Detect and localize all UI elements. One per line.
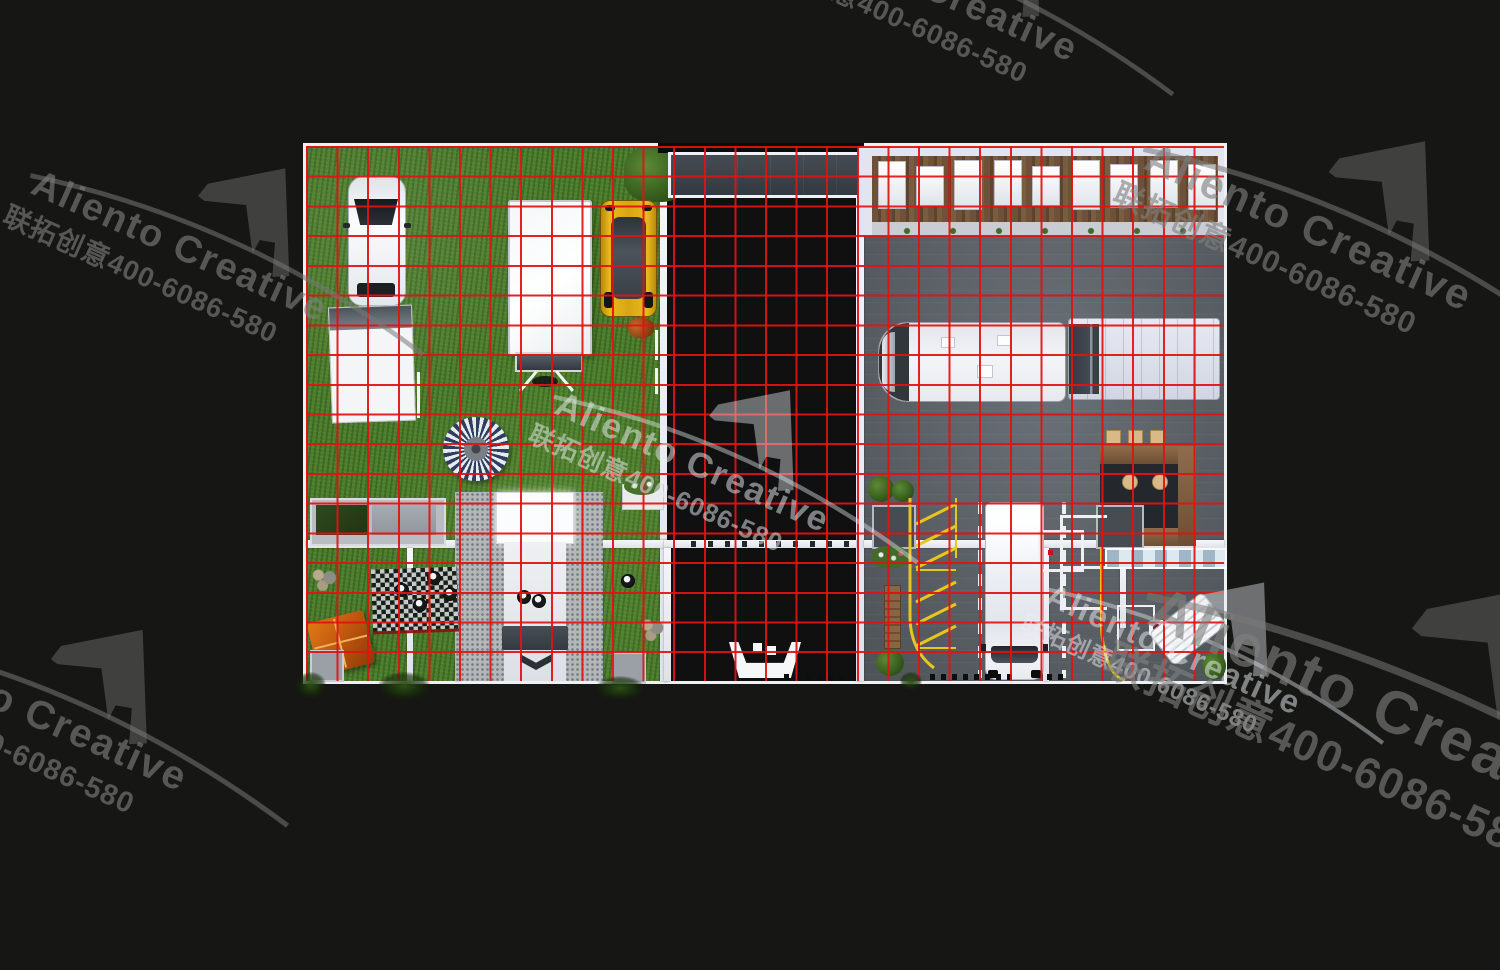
aliento-logo-icon — [767, 0, 1233, 110]
desk-stool — [753, 643, 762, 652]
skylight-window — [1110, 164, 1138, 208]
bush — [876, 650, 904, 676]
white-bus-top-view — [878, 322, 1066, 402]
sportscar-detail — [605, 205, 615, 211]
bottom-rack-row — [784, 674, 844, 680]
bar-stool-round — [1152, 474, 1168, 490]
sportscar-glass — [611, 217, 646, 299]
pond-inset — [316, 505, 368, 535]
car-windshield — [354, 199, 398, 225]
showroom-zone — [664, 146, 856, 681]
bus-roof-hatch — [997, 335, 1011, 346]
white-post — [655, 330, 658, 360]
watermark-brand: Aliento Creative — [763, 0, 1188, 117]
desk-stool — [767, 646, 776, 655]
person — [427, 571, 441, 585]
car-rear-window — [357, 283, 395, 297]
bus-windshield — [882, 332, 895, 392]
white-pavilion-roof — [508, 200, 592, 356]
bus-roof-hatch — [941, 337, 955, 348]
sportscar-detail — [642, 205, 652, 211]
dark-canopy-roof — [668, 152, 868, 198]
wall-mid-right — [856, 192, 864, 681]
red-marker — [1048, 550, 1053, 555]
grass-tuft — [900, 672, 922, 690]
grass-tuft — [596, 676, 644, 700]
person — [443, 587, 457, 601]
person — [621, 574, 635, 588]
parasol-hub — [464, 437, 488, 461]
skylight-window — [1188, 164, 1216, 210]
white-walkway — [504, 542, 566, 681]
bush — [868, 476, 894, 502]
pavilion-entrance-glass — [515, 352, 583, 372]
striped-parasol — [443, 417, 509, 481]
gate-outline — [1038, 530, 1084, 572]
car-mirror-left — [343, 223, 350, 228]
planter-flowers — [624, 477, 660, 495]
wall-tick-marks — [691, 541, 849, 547]
skylight-window — [1072, 160, 1100, 210]
watermark: Aliento Creative 联拓创意400-6086-580 — [748, 0, 1233, 152]
wall-mid-lower — [664, 548, 671, 681]
white-container-roof — [328, 305, 416, 424]
grass-tuft — [296, 672, 326, 698]
sportscar-detail — [644, 292, 653, 308]
car-mirror-right — [404, 223, 411, 228]
white-car-top-view — [348, 176, 406, 306]
skylight-window — [954, 160, 982, 210]
bar-stool-round — [1122, 474, 1138, 490]
van-windshield — [991, 646, 1038, 663]
wooden-bench — [884, 585, 901, 649]
grass-tuft — [378, 672, 430, 700]
flower-bed — [872, 546, 908, 568]
person — [395, 583, 409, 597]
site-plan-render — [303, 143, 1227, 684]
skylight-window — [994, 160, 1022, 206]
watermark-phone: 联拓创意400-6086-580 — [748, 0, 1172, 152]
watermark-phone: 联拓创意400-6086-580 — [0, 657, 286, 887]
garden-slab — [310, 498, 446, 546]
office-ledge — [872, 222, 1218, 236]
white-post — [417, 372, 420, 418]
canvas: Aliento Creative 联拓创意400-6086-580 Alient… — [0, 0, 1500, 843]
watermark: Aliento Creative 联拓创意400-6086-580 — [0, 514, 350, 887]
rocks — [310, 566, 338, 592]
truck-cab — [1069, 324, 1099, 394]
sportscar-detail — [604, 292, 613, 308]
walkway-canopy — [496, 492, 574, 544]
bar-stool — [1106, 430, 1121, 445]
bar-stool — [1150, 430, 1165, 445]
flower-planter — [622, 484, 664, 510]
watermark-brand: Aliento Creative — [0, 618, 304, 850]
skylight-window — [878, 161, 906, 209]
bar-counter-right — [1178, 446, 1196, 546]
skylight-window — [916, 166, 944, 206]
person — [532, 594, 546, 608]
deck-inset — [372, 505, 436, 535]
courtyard-table — [502, 626, 568, 650]
white-post — [655, 368, 658, 394]
office-wood-floor — [872, 156, 1218, 222]
white-van-driving — [985, 502, 1044, 680]
yellow-sportscar-top-view — [600, 200, 657, 317]
bar-stool — [1128, 430, 1143, 445]
person — [413, 598, 427, 612]
rocks — [640, 616, 664, 642]
van-mirror — [981, 644, 986, 653]
van-mirror — [1043, 644, 1048, 653]
white-truck-trailer — [1068, 318, 1220, 400]
van-wheel — [1031, 670, 1041, 678]
pavilion-shadow — [532, 376, 558, 387]
skylight-window — [1032, 166, 1060, 206]
bottom-rack-row — [930, 674, 1012, 680]
person — [517, 590, 531, 604]
bush — [1202, 652, 1226, 680]
container-edge — [329, 306, 412, 331]
yellow-road-markings — [908, 498, 960, 681]
bus-roof-hatch — [977, 365, 993, 378]
bottom-rack-row — [1047, 674, 1065, 680]
garden-ornament — [628, 318, 654, 338]
ledge-plants — [872, 224, 1218, 234]
skylight-window — [1150, 160, 1178, 208]
